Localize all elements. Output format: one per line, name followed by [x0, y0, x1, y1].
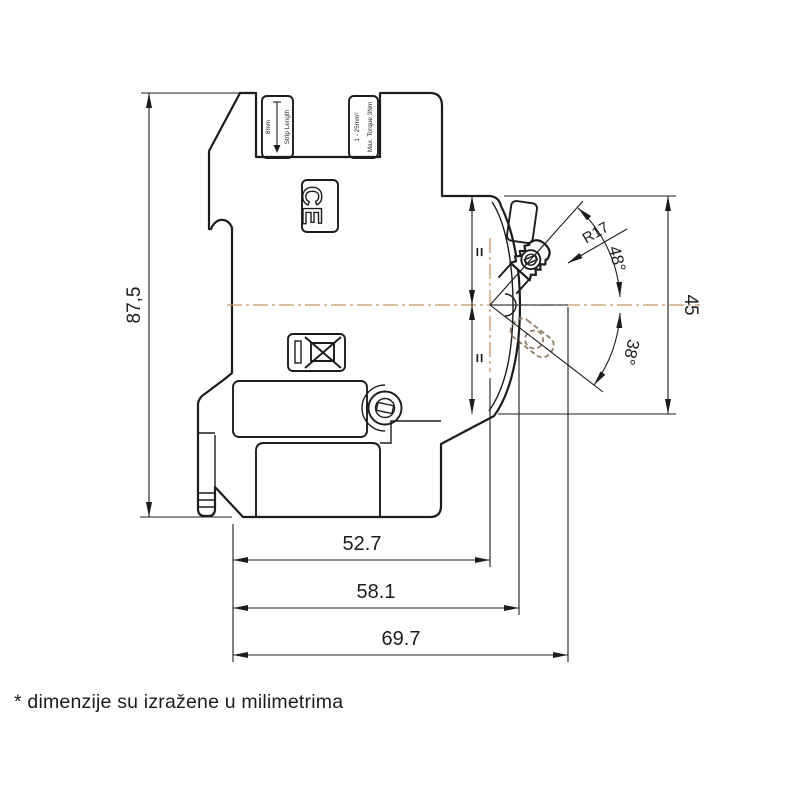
dimension-87-5: 87,5 [124, 93, 149, 517]
technical-drawing-page: Strip Length 8mm Max. Torque 3Nm 1 - 25m… [0, 0, 800, 800]
strip-length-value: 8mm [265, 120, 272, 134]
dim-87-5-value: 87,5 [124, 287, 145, 324]
strip-length-label: Strip Length [284, 109, 291, 144]
angle-38-value: 38° [619, 338, 643, 367]
dim-69-7-value: 69.7 [382, 628, 421, 650]
r17-value: R17 [580, 219, 612, 247]
dim-58-1-value: 58.1 [357, 581, 396, 603]
dimension-58-1: 58.1 [233, 581, 519, 608]
dim-52-7-value: 52.7 [343, 533, 382, 555]
equal-mark-upper: = [470, 247, 487, 256]
equal-mark-lower: = [470, 353, 487, 362]
dimension-69-7: 69.7 [233, 628, 568, 655]
max-torque-plate: Max. Torque 3Nm 1 - 25mm² [349, 96, 378, 158]
angle-48-value: 48° [605, 244, 630, 274]
strip-length-plate: Strip Length 8mm [262, 96, 293, 158]
strip-length-arrow-icon [274, 145, 281, 153]
ce-mark-text: CE [297, 186, 327, 226]
dim-45-value: 45 [680, 294, 701, 315]
dimension-52-7: 52.7 [233, 533, 490, 560]
wire-range-label: 1 - 25mm² [354, 112, 361, 141]
mcb-side-view-drawing: Strip Length 8mm Max. Torque 3Nm 1 - 25m… [0, 0, 800, 800]
units-note: * dimenzije su izražene u milimetrima [14, 691, 343, 713]
max-torque-label: Max. Torque 3Nm [367, 102, 374, 152]
